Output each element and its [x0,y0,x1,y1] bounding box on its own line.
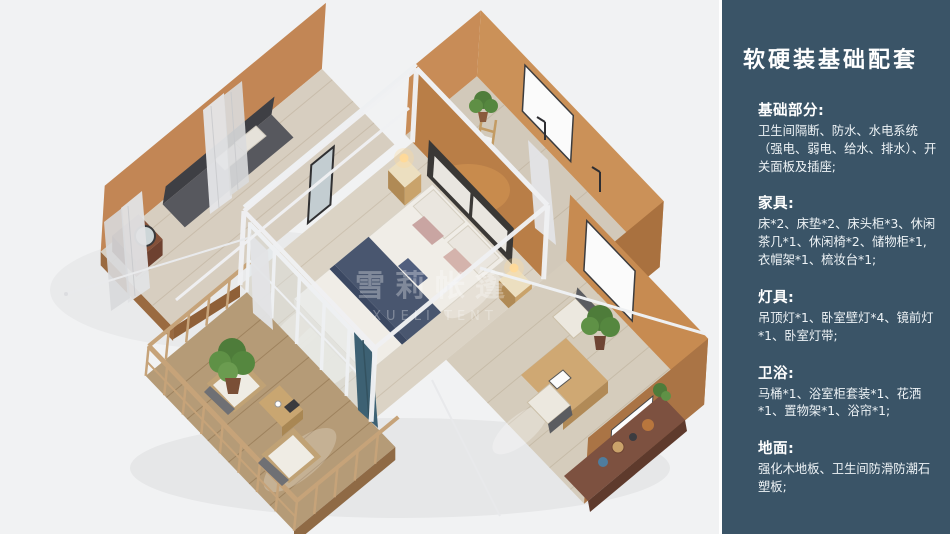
section-furniture: 家具: 床*2、床垫*2、床头柜*3、休闲茶几*1、休闲椅*2、储物柜*1, 衣… [758,192,937,269]
section-heading: 家具: [758,192,937,213]
section-lighting: 灯具: 吊顶灯*1、卧室壁灯*4、镜前灯*1、卧室灯带; [758,286,937,346]
watermark-en: XUELI TENT [372,309,498,324]
watermark-cn: 雪莉帐篷 [355,269,515,304]
decor-item [629,433,637,441]
section-heading: 灯具: [758,286,937,307]
section-body: 马桶*1、浴室柜套装*1、花洒*1、置物架*1、浴帘*1; [758,386,937,422]
section-heading: 卫浴: [758,362,937,383]
section-bathroom: 卫浴: 马桶*1、浴室柜套装*1、花洒*1、置物架*1、浴帘*1; [758,362,937,422]
table-lamp [400,154,409,163]
section-body: 吊顶灯*1、卧室壁灯*4、镜前灯*1、卧室灯带; [758,310,937,346]
floorplan-render-svg: 雪莉帐篷 XUELI TENT [0,0,719,534]
table-cup [275,401,281,407]
floorplan-render: 雪莉帐篷 XUELI TENT [0,0,719,534]
sidebar-title: 软硬装基础配套 [743,42,937,74]
info-sidebar: 软硬装基础配套 基础部分: 卫生间隔断、防水、水电系统（强电、弱电、给水、排水）… [719,0,950,534]
section-body: 强化木地板、卫生间防滑防潮石塑板; [758,461,937,497]
section-body: 卫生间隔断、防水、水电系统（强电、弱电、给水、排水）、开关面板及插座; [758,123,937,176]
decor-bowl [612,441,624,453]
decor-basket [642,419,654,431]
section-body: 床*2、床垫*2、床头柜*3、休闲茶几*1、休闲椅*2、储物柜*1, 衣帽架*1… [758,216,937,269]
section-basics: 基础部分: 卫生间隔断、防水、水电系统（强电、弱电、给水、排水）、开关面板及插座… [758,99,937,176]
section-flooring: 地面: 强化木地板、卫生间防滑防潮石塑板; [758,437,937,497]
decor-vase [598,457,608,467]
section-heading: 地面: [758,437,937,458]
watermark: 雪莉帐篷 XUELI TENT [355,269,515,324]
slide: 雪莉帐篷 XUELI TENT 软硬装基础配套 基础部分: 卫生间隔断、防水、水… [0,0,950,534]
section-heading: 基础部分: [758,99,937,120]
